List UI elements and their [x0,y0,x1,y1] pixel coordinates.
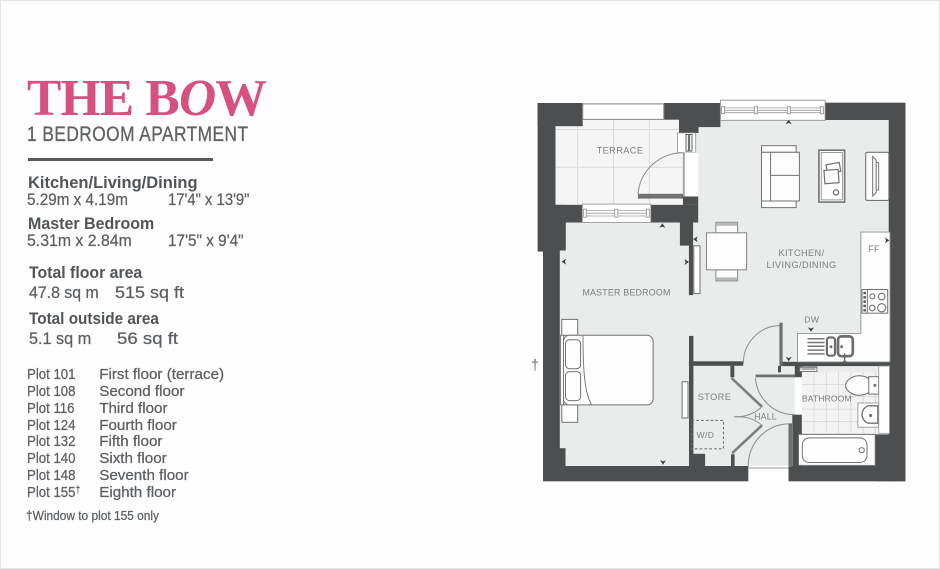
svg-text:DW: DW [804,315,820,325]
svg-text:†: † [531,358,539,374]
svg-text:HALL: HALL [754,411,777,421]
svg-text:BATHROOM: BATHROOM [802,394,852,404]
svg-text:W/D: W/D [697,430,715,440]
svg-text:MASTER BEDROOM: MASTER BEDROOM [582,287,670,297]
svg-text:LIVING/DINING: LIVING/DINING [766,260,836,270]
svg-text:TERRACE: TERRACE [597,146,644,156]
svg-text:FF: FF [868,244,880,254]
svg-text:KITCHEN/: KITCHEN/ [778,248,824,258]
svg-text:STORE: STORE [698,392,731,402]
